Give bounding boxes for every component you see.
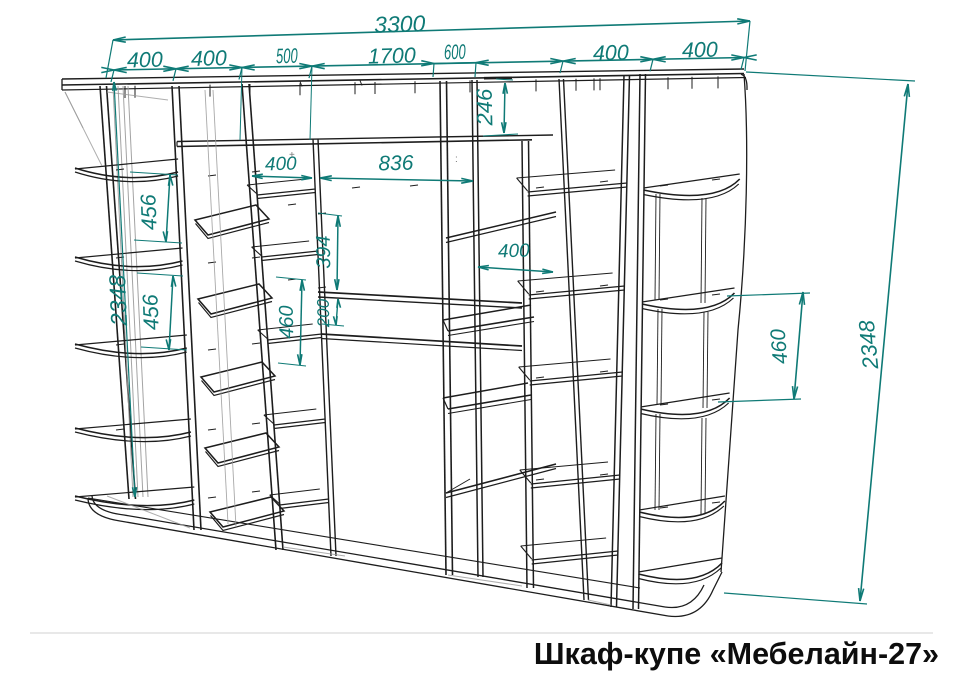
svg-text:836: 836 bbox=[378, 152, 414, 176]
svg-text:460: 460 bbox=[276, 305, 299, 339]
svg-text:2348: 2348 bbox=[104, 274, 132, 327]
svg-text:400: 400 bbox=[498, 240, 531, 262]
svg-text:1700: 1700 bbox=[368, 43, 416, 68]
svg-text:600: 600 bbox=[444, 39, 467, 64]
svg-text:400: 400 bbox=[191, 46, 228, 71]
svg-text:400: 400 bbox=[682, 38, 719, 63]
svg-text:3300: 3300 bbox=[374, 10, 426, 38]
svg-text:400: 400 bbox=[127, 48, 164, 73]
svg-text:2348: 2348 bbox=[854, 318, 884, 371]
svg-text:400: 400 bbox=[593, 41, 630, 66]
svg-text:246: 246 bbox=[472, 88, 498, 127]
svg-text::: : bbox=[455, 154, 458, 165]
svg-text:500: 500 bbox=[276, 43, 299, 68]
svg-text:460: 460 bbox=[767, 328, 793, 365]
svg-text:456: 456 bbox=[136, 194, 161, 231]
svg-text:394: 394 bbox=[313, 235, 336, 269]
svg-text:456: 456 bbox=[138, 294, 163, 331]
svg-text:+: + bbox=[289, 150, 295, 161]
svg-text:Шкаф-купе «Мебелайн-27»: Шкаф-купе «Мебелайн-27» bbox=[534, 637, 939, 671]
